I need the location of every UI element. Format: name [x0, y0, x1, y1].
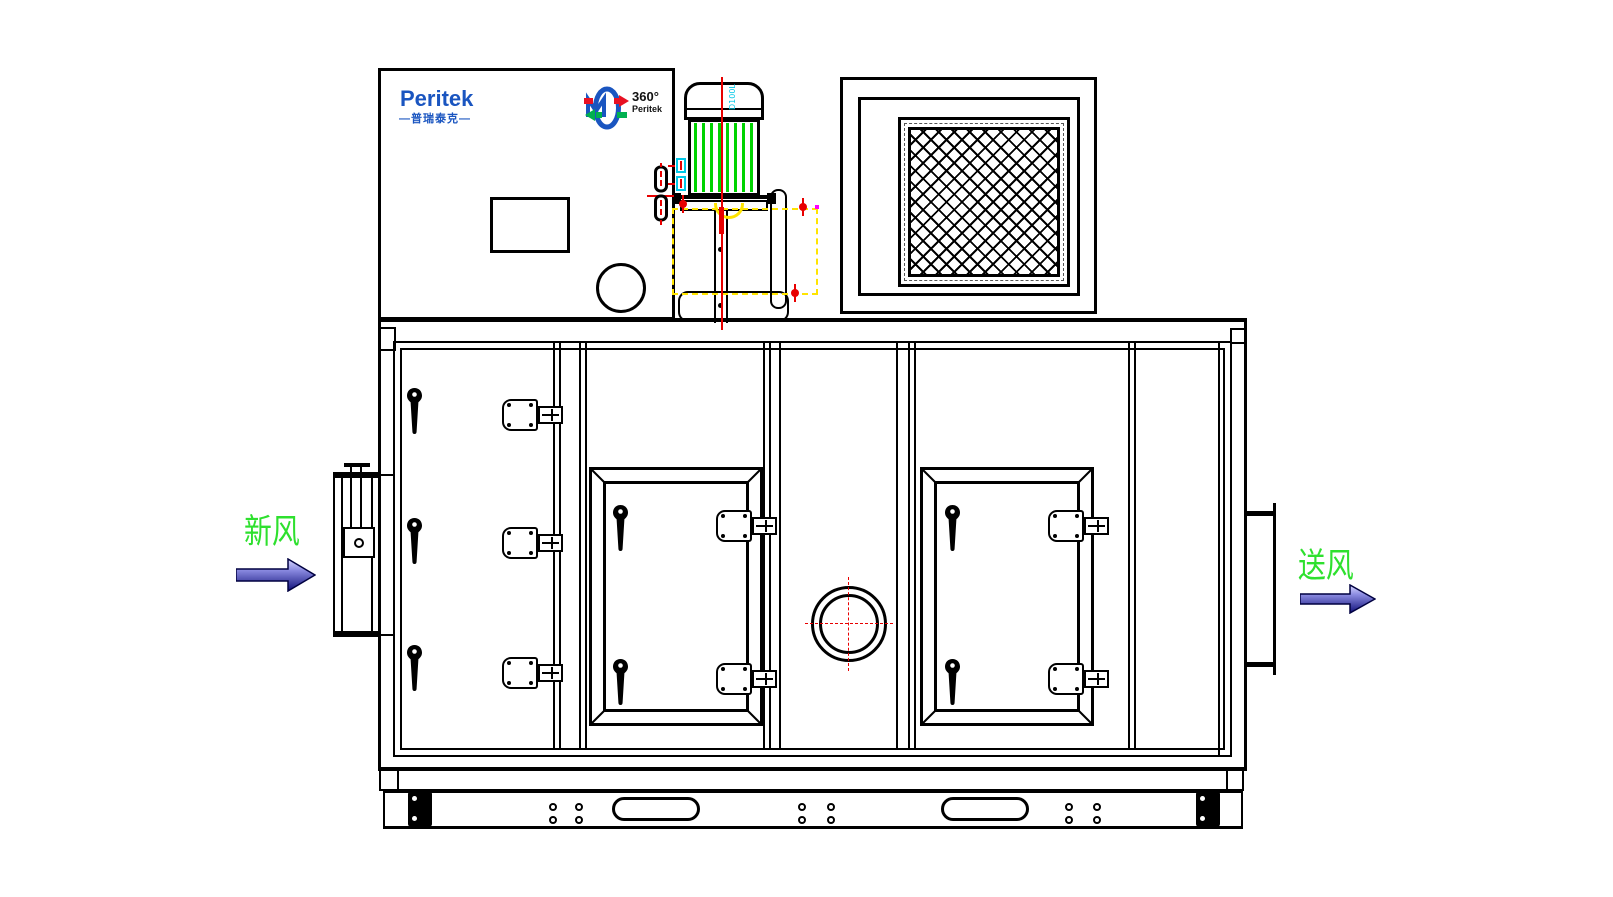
bolt-hole — [1093, 803, 1101, 811]
panel-seam-line — [585, 341, 587, 750]
motor-base-plate — [674, 195, 774, 199]
foot-bracket — [408, 791, 432, 827]
panel-seam-line — [908, 341, 910, 750]
snap-point — [815, 205, 819, 209]
bolt-hole — [798, 816, 806, 824]
damper-stem — [350, 467, 352, 527]
door-latch[interactable] — [502, 399, 564, 433]
motor-cap — [684, 82, 764, 120]
wheel-badge-degrees: 360° — [632, 89, 659, 104]
door-handle-icon[interactable] — [944, 658, 961, 708]
sight-glass-inner — [819, 594, 879, 654]
door-handle-icon[interactable] — [612, 504, 629, 554]
anchor-slot — [612, 797, 700, 821]
bolt-hole — [1093, 816, 1101, 824]
damper-frame-right — [379, 472, 381, 637]
bolt-hole — [575, 816, 583, 824]
bolt-hole — [1065, 803, 1073, 811]
door-latch[interactable] — [1048, 663, 1110, 697]
terminal-tick — [668, 165, 675, 167]
motor-frame-label: D100L — [728, 84, 737, 110]
door-handle-icon[interactable] — [406, 517, 423, 567]
damper-actuator-shaft — [354, 538, 364, 548]
drawing-canvas: 新风 送风 Peritek —普瑞泰克— 360° Peritek D100L — [0, 0, 1613, 897]
centerline-horizontal — [805, 623, 893, 624]
door-latch[interactable] — [716, 510, 778, 544]
bolt-marker — [791, 289, 799, 297]
flex-connector-outline — [672, 208, 818, 295]
damper-mount-tab — [381, 474, 394, 476]
base-frame — [383, 789, 1243, 829]
damper-stem — [360, 467, 362, 527]
rotary-wheel-icon — [584, 86, 630, 130]
supply-air-label: 送风 — [1298, 538, 1354, 587]
outlet-flange-edge — [1273, 503, 1276, 675]
door-handle-icon[interactable] — [406, 644, 423, 694]
fresh-air-label: 新风 — [244, 504, 300, 553]
outlet-flange-bottom-bar — [1246, 662, 1276, 667]
door-latch[interactable] — [502, 657, 564, 691]
door-handle-icon[interactable] — [612, 658, 629, 708]
door-handle-icon[interactable] — [406, 387, 423, 437]
filter-grille-mesh — [908, 127, 1060, 277]
door-latch[interactable] — [716, 663, 778, 697]
terminal-mark — [680, 179, 682, 188]
corner-step-top-left — [378, 327, 396, 351]
bolt-hole — [575, 803, 583, 811]
motor-cap-line — [687, 108, 761, 110]
bolt-marker — [799, 203, 807, 211]
foot-bracket — [1196, 791, 1220, 827]
bolt-hole — [549, 816, 557, 824]
bolt-hole — [549, 803, 557, 811]
corner-step-bottom-right — [1226, 769, 1244, 791]
bolt-hole — [1065, 816, 1073, 824]
brand-tagline: —普瑞泰克— — [399, 110, 471, 126]
panel-seam-line — [914, 341, 916, 750]
valve-icon — [653, 163, 669, 225]
motor-cooling-fins — [694, 123, 754, 192]
bolt-hole — [827, 816, 835, 824]
bolt-hole — [827, 803, 835, 811]
duct-plenum — [678, 291, 789, 322]
anchor-slot — [941, 797, 1029, 821]
panel-seam-line — [1134, 341, 1136, 750]
cabinet-right-wall-line — [1218, 341, 1220, 757]
outlet-flange-top-bar — [1246, 511, 1276, 516]
brand-logo: Peritek — [400, 86, 473, 112]
door-latch[interactable] — [1048, 510, 1110, 544]
panel-seam-line — [1128, 341, 1130, 750]
terminal-tick — [668, 183, 675, 185]
corner-step-bottom-left — [379, 769, 399, 791]
damper-mount-tab — [381, 634, 394, 636]
motor-centerline — [721, 77, 723, 330]
centerline-vertical — [848, 577, 849, 671]
damper-frame-left — [333, 472, 335, 637]
bolt-hole — [798, 803, 806, 811]
bolt-marker — [679, 200, 687, 208]
terminal-mark — [680, 161, 682, 170]
control-box-window — [490, 197, 570, 253]
supply-air-arrow-icon — [1300, 584, 1376, 614]
panel-seam-line — [779, 341, 781, 750]
fresh-air-arrow-icon — [236, 558, 316, 592]
damper-frame-bottom — [333, 631, 381, 637]
door-latch[interactable] — [502, 527, 564, 561]
control-box-port — [596, 263, 646, 313]
motor-centerline-thick — [719, 207, 724, 234]
panel-seam-line — [896, 341, 898, 750]
corner-step-top-right — [1230, 328, 1246, 344]
wheel-badge-brand: Peritek — [632, 104, 662, 114]
panel-seam-line — [579, 341, 581, 750]
door-handle-icon[interactable] — [944, 504, 961, 554]
damper-handle-bar[interactable] — [344, 463, 370, 467]
